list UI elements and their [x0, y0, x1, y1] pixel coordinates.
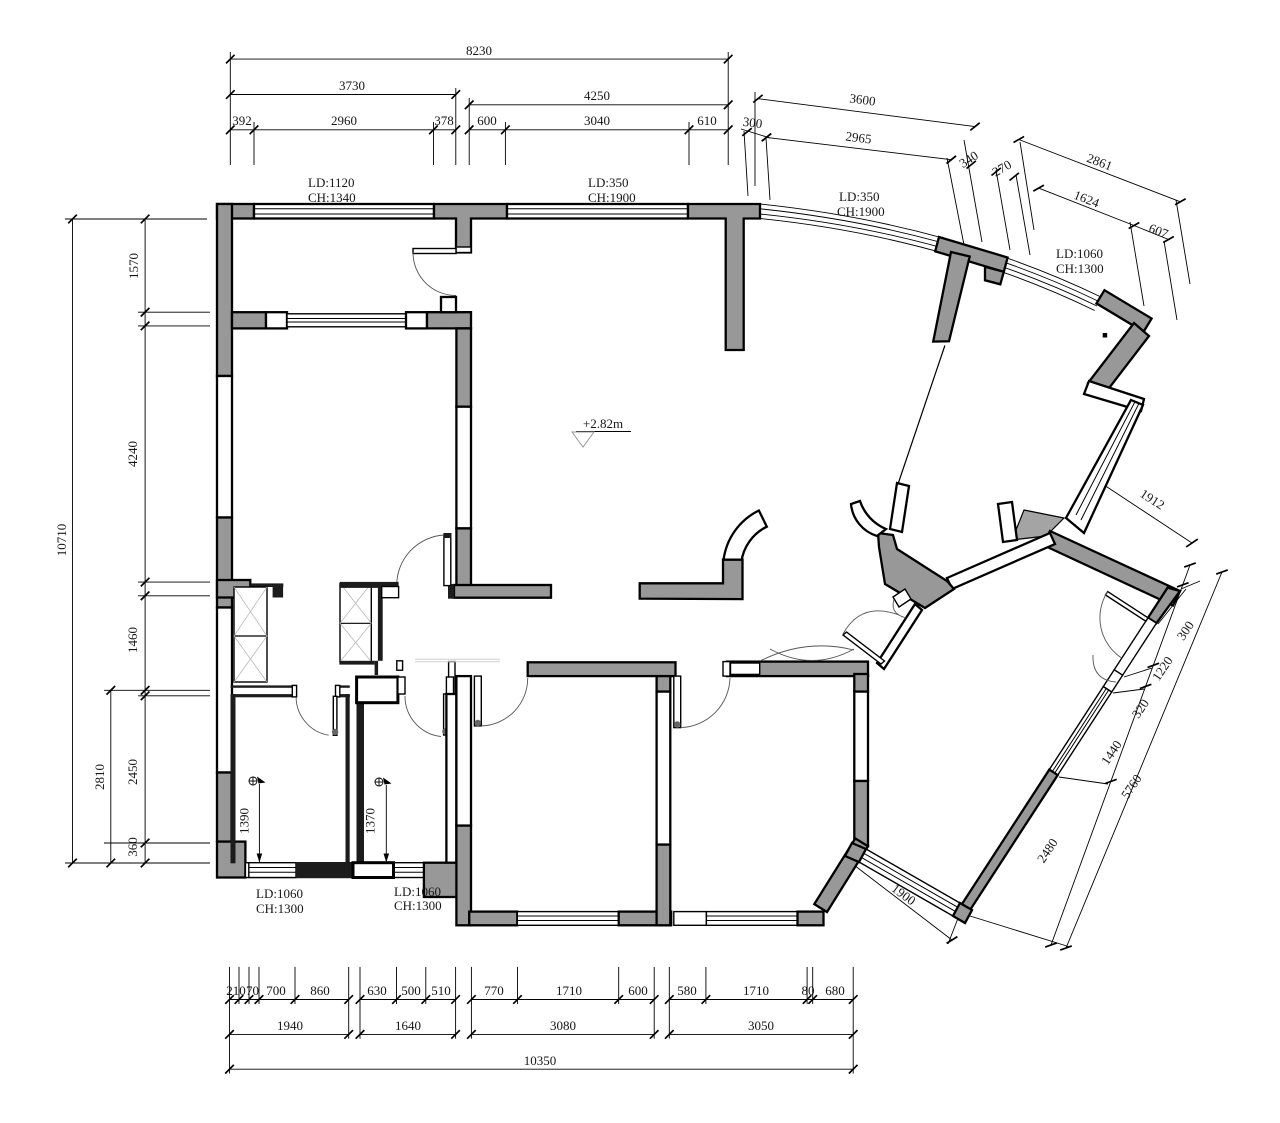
- svg-text:CH:1340: CH:1340: [308, 190, 356, 205]
- svg-text:CH:1900: CH:1900: [837, 204, 885, 219]
- svg-text:600: 600: [628, 983, 648, 998]
- svg-text:1460: 1460: [125, 627, 140, 653]
- svg-text:3730: 3730: [339, 78, 365, 93]
- svg-text:4250: 4250: [584, 88, 610, 103]
- svg-text:1370: 1370: [362, 808, 377, 834]
- svg-text:860: 860: [310, 983, 330, 998]
- svg-text:378: 378: [434, 113, 454, 128]
- svg-text:600: 600: [477, 113, 497, 128]
- svg-text:680: 680: [825, 983, 845, 998]
- svg-text:2960: 2960: [331, 113, 357, 128]
- svg-text:4240: 4240: [125, 441, 140, 467]
- svg-text:2965: 2965: [845, 129, 873, 147]
- svg-text:LD:350: LD:350: [588, 175, 628, 190]
- svg-text:360: 360: [125, 837, 140, 857]
- svg-text:LD:1060: LD:1060: [256, 886, 303, 901]
- svg-text:630: 630: [367, 983, 387, 998]
- svg-text:610: 610: [697, 113, 717, 128]
- svg-text:1710: 1710: [556, 983, 582, 998]
- svg-text:3080: 3080: [550, 1018, 576, 1033]
- svg-text:CH:1300: CH:1300: [1056, 261, 1104, 276]
- svg-text:3040: 3040: [584, 113, 610, 128]
- svg-text:10350: 10350: [524, 1053, 557, 1068]
- svg-text:CH:1300: CH:1300: [394, 898, 442, 913]
- svg-text:2450: 2450: [125, 759, 140, 785]
- svg-text:700: 700: [266, 983, 286, 998]
- svg-text:1710: 1710: [743, 983, 769, 998]
- svg-text:LD:1060: LD:1060: [1056, 246, 1103, 261]
- svg-text:500: 500: [401, 983, 421, 998]
- svg-text:1570: 1570: [126, 253, 141, 279]
- svg-text:10710: 10710: [54, 524, 69, 557]
- svg-text:LD:1060: LD:1060: [394, 884, 441, 899]
- svg-text:CH:1900: CH:1900: [588, 190, 636, 205]
- svg-text:1940: 1940: [277, 1018, 303, 1033]
- svg-text:580: 580: [677, 983, 697, 998]
- svg-text:3050: 3050: [748, 1018, 774, 1033]
- svg-text:1640: 1640: [395, 1018, 421, 1033]
- svg-text:LD:1120: LD:1120: [308, 175, 354, 190]
- svg-text:8230: 8230: [466, 43, 492, 58]
- svg-text:510: 510: [431, 983, 451, 998]
- svg-text:CH:1300: CH:1300: [256, 901, 304, 916]
- svg-text:770: 770: [484, 983, 504, 998]
- svg-text:2810: 2810: [92, 764, 107, 790]
- svg-text:1390: 1390: [236, 808, 251, 834]
- svg-text:LD:350: LD:350: [839, 189, 879, 204]
- svg-text:392: 392: [232, 113, 252, 128]
- svg-text:+2.82m: +2.82m: [583, 416, 623, 431]
- svg-text:300: 300: [742, 114, 763, 131]
